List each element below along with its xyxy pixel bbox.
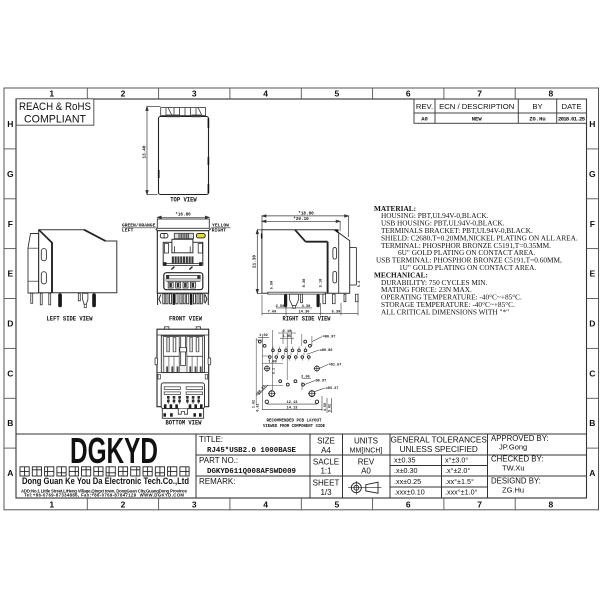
svg-text:1:1: 1:1 — [320, 467, 332, 476]
svg-text:1.62: 1.62 — [253, 400, 257, 408]
svg-text:E: E — [589, 269, 595, 279]
svg-text:DATE: DATE — [562, 102, 582, 111]
svg-text:RIGHT SIDE VIEW: RIGHT SIDE VIEW — [283, 316, 331, 323]
svg-text:5: 5 — [335, 89, 340, 99]
svg-text:E: E — [7, 269, 13, 279]
svg-text:COMPLIANT: COMPLIANT — [24, 113, 86, 125]
svg-text:9.02: 9.02 — [329, 404, 333, 412]
svg-text:.xxx±0.10: .xxx±0.10 — [394, 487, 425, 496]
svg-text:A0: A0 — [421, 115, 428, 122]
svg-text:x°±3.0°: x°±3.0° — [445, 455, 468, 464]
svg-text:G: G — [589, 169, 596, 179]
svg-text:TOP VIEW: TOP VIEW — [170, 197, 197, 204]
svg-text:D: D — [589, 319, 595, 329]
svg-text:.x±0.30: .x±0.30 — [394, 466, 418, 475]
svg-text:REV.: REV. — [416, 102, 433, 111]
svg-text:SHEET: SHEET — [313, 479, 340, 488]
svg-text:2: 2 — [121, 89, 126, 99]
svg-text:5.50: 5.50 — [271, 281, 275, 290]
svg-text:3: 3 — [192, 499, 197, 509]
svg-text:0.30: 0.30 — [303, 279, 307, 288]
svg-text:A4: A4 — [321, 446, 331, 455]
svg-text:B: B — [7, 418, 13, 428]
svg-text:2.06: 2.06 — [301, 376, 310, 380]
svg-text:3: 3 — [192, 89, 197, 99]
svg-text:H: H — [7, 119, 13, 129]
svg-text:7.60: 7.60 — [268, 311, 277, 315]
svg-text:1: 1 — [49, 89, 54, 99]
svg-text:5.1: 5.1 — [272, 368, 276, 374]
svg-text:8: 8 — [549, 499, 554, 509]
svg-text:7: 7 — [477, 499, 482, 509]
svg-text:21.30: 21.30 — [253, 255, 258, 268]
svg-text:PART NO.:: PART NO.: — [199, 456, 238, 465]
svg-text:B: B — [589, 418, 595, 428]
svg-text:5.10: 5.10 — [319, 279, 323, 288]
svg-text:2018.01.25: 2018.01.25 — [558, 115, 586, 122]
svg-text:UNLESS SPECIFIED: UNLESS SPECIFIED — [400, 445, 478, 454]
svg-text:=Ø1.57: =Ø1.57 — [329, 363, 342, 368]
svg-text:4.50: 4.50 — [324, 403, 328, 411]
svg-text:G: G — [7, 169, 14, 179]
svg-text:ALL CRITICAL DIMENSIONS WITH ": ALL CRITICAL DIMENSIONS WITH "*" — [381, 307, 509, 316]
svg-text:7: 7 — [477, 89, 482, 99]
svg-text:12.13: 12.13 — [287, 401, 298, 405]
svg-text:.x°±2.0°: .x°±2.0° — [445, 466, 470, 475]
svg-text:A0: A0 — [361, 467, 371, 476]
svg-text:6: 6 — [406, 499, 411, 509]
svg-text:Ø0.97: Ø0.97 — [316, 378, 327, 383]
svg-text:JP.Gong: JP.Gong — [499, 443, 527, 452]
svg-text:REV: REV — [358, 458, 375, 467]
svg-text:.xx±0.25: .xx±0.25 — [394, 477, 421, 486]
svg-text:4.30: 4.30 — [302, 305, 311, 309]
svg-text:Dong Guan Ke You Da Electronic: Dong Guan Ke You Da Electronic Tech.Co.,… — [22, 476, 189, 486]
svg-text:GENERAL TOLERANCES: GENERAL TOLERANCES — [391, 435, 488, 444]
svg-text:SACLE: SACLE — [313, 458, 339, 467]
svg-text:6: 6 — [406, 89, 411, 99]
svg-text:.xxx°±1.0°: .xxx°±1.0° — [445, 487, 478, 496]
svg-text:CHECKED BY:: CHECKED BY: — [491, 455, 543, 464]
svg-text:LEFT: LEFT — [122, 228, 134, 234]
svg-text:RJ45*USB2.0 1000BASE: RJ45*USB2.0 1000BASE — [207, 447, 296, 455]
svg-text:1: 1 — [49, 499, 54, 509]
svg-text:14.13: 14.13 — [287, 407, 298, 411]
svg-text:LEFT SIDE VIEW: LEFT SIDE VIEW — [47, 316, 93, 323]
svg-text:=Ø0.97: =Ø0.97 — [323, 335, 336, 340]
svg-text:SIZE: SIZE — [317, 437, 335, 446]
svg-text:FRONT VIEW: FRONT VIEW — [169, 316, 202, 323]
svg-text:Tel:+86-0769-87334886, Fax:+86: Tel:+86-0769-87334886, Fax:+86-0769-8784… — [24, 493, 184, 498]
svg-text:MM[INCH]: MM[INCH] — [350, 448, 383, 455]
svg-text:REMARK:: REMARK: — [199, 477, 235, 486]
svg-text:REACH & RoHS: REACH & RoHS — [19, 101, 91, 113]
svg-text:5: 5 — [335, 499, 340, 509]
svg-text:VIEWED FROM COMPONENT SIDE: VIEWED FROM COMPONENT SIDE — [263, 423, 325, 429]
svg-text:APPROVED BY:: APPROVED BY: — [491, 434, 549, 443]
svg-text:BOTTOM VIEW: BOTTOM VIEW — [166, 420, 202, 427]
svg-text:=Ø0.89: =Ø0.89 — [320, 348, 333, 353]
svg-text:RECOMMENDED PCB LAYOUT: RECOMMENDED PCB LAYOUT — [267, 417, 322, 423]
svg-text:ZG.Hu: ZG.Hu — [502, 485, 524, 494]
svg-text:UNITS: UNITS — [354, 437, 378, 446]
svg-text:2: 2 — [121, 499, 126, 509]
svg-text:NEW: NEW — [472, 115, 483, 122]
svg-text:D: D — [7, 319, 13, 329]
svg-text:x±0.35: x±0.35 — [394, 455, 416, 464]
svg-text:5.2: 5.2 — [358, 281, 362, 287]
svg-text:TITLE:: TITLE: — [199, 435, 223, 444]
svg-text:8: 8 — [549, 89, 554, 99]
svg-text:ZG.Hu: ZG.Hu — [529, 115, 546, 122]
svg-text:RIGHT: RIGHT — [212, 228, 227, 234]
svg-text:4: 4 — [263, 499, 268, 509]
svg-text:A: A — [589, 468, 595, 478]
svg-text:4: 4 — [263, 89, 268, 99]
svg-text:14.30: 14.30 — [299, 311, 310, 315]
svg-text:=Ø3.27: =Ø3.27 — [326, 386, 339, 391]
svg-text:DGKYD611Q008AFSWD009: DGKYD611Q008AFSWD009 — [207, 468, 296, 476]
svg-text:H: H — [589, 119, 595, 129]
svg-text:2.50: 2.50 — [276, 305, 285, 309]
svg-text:ECN / DESCRIPTION: ECN / DESCRIPTION — [439, 102, 514, 111]
svg-text:C: C — [7, 368, 13, 378]
svg-text:A: A — [7, 468, 13, 478]
svg-text:C: C — [589, 368, 595, 378]
svg-text:.xx°±1.5°: .xx°±1.5° — [445, 477, 474, 486]
svg-text:DGKYD: DGKYD — [70, 430, 158, 471]
svg-text:F: F — [8, 219, 13, 229]
svg-text:0.51: 0.51 — [257, 403, 261, 411]
svg-text:BY: BY — [532, 102, 542, 111]
svg-text:5.30: 5.30 — [332, 311, 341, 315]
svg-text:1.00: 1.00 — [268, 361, 276, 365]
svg-text:1/3: 1/3 — [320, 488, 332, 497]
svg-text:TW.Xu: TW.Xu — [502, 463, 525, 472]
svg-text:F: F — [590, 219, 595, 229]
svg-text:DESIGND BY:: DESIGND BY: — [491, 476, 541, 485]
svg-text:13.40: 13.40 — [142, 145, 147, 158]
